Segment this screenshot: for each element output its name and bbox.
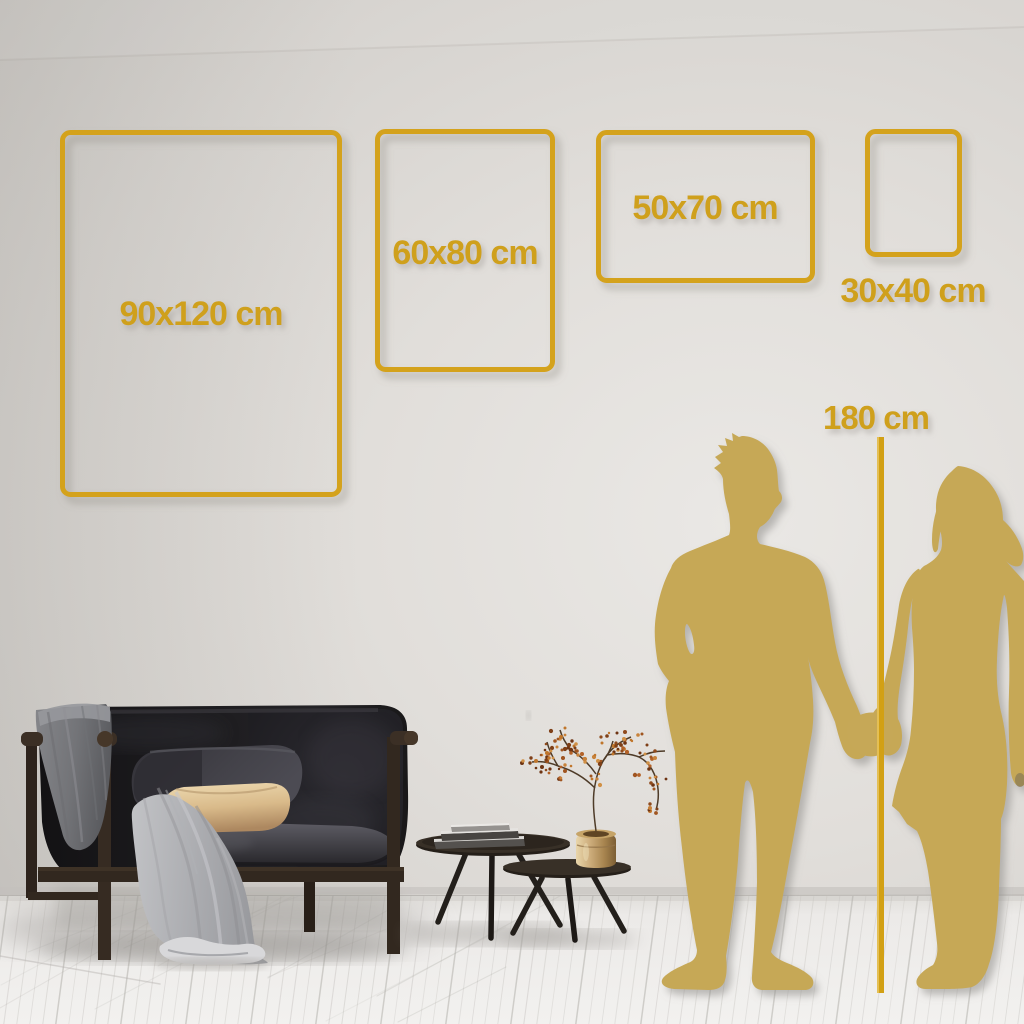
svg-text:60x80 cm: 60x80 cm	[392, 234, 537, 272]
svg-text:50x70 cm: 50x70 cm	[632, 189, 777, 227]
svg-text:30x40 cm: 30x40 cm	[840, 272, 985, 310]
svg-text:90x120 cm: 90x120 cm	[119, 295, 282, 333]
svg-text:180 cm: 180 cm	[823, 399, 929, 436]
